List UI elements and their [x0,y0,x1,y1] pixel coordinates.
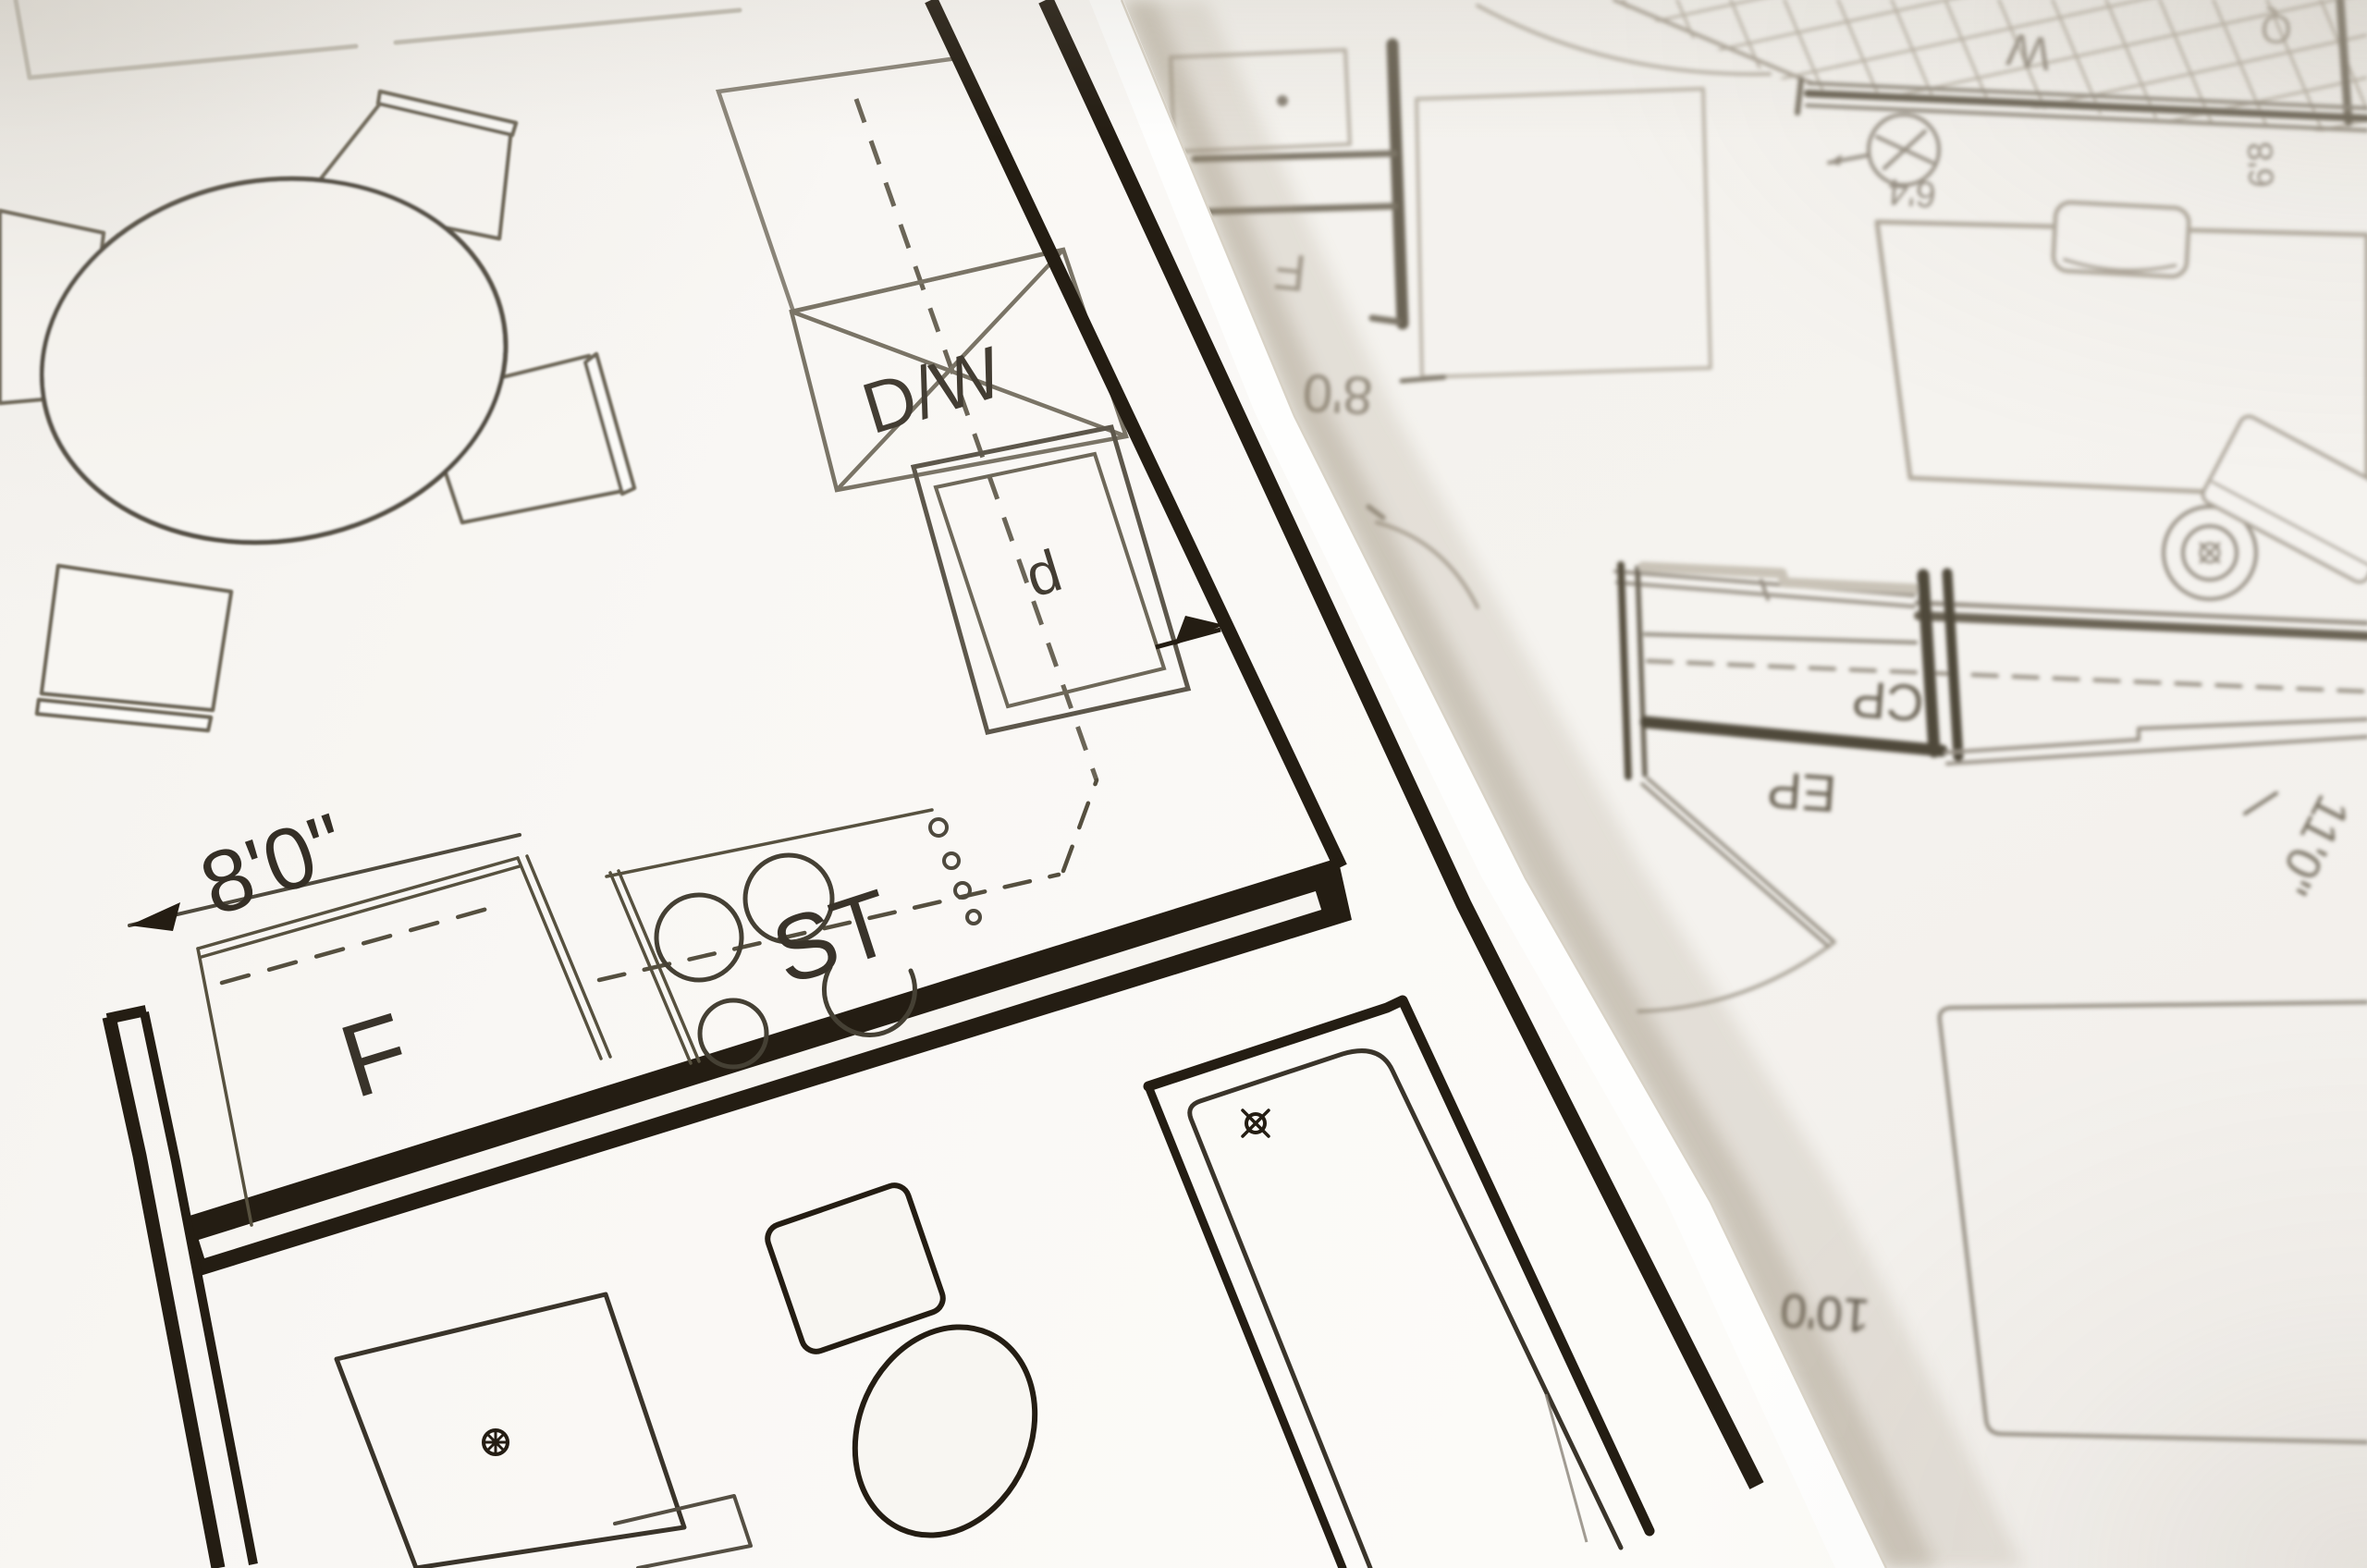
svg-text:CP: CP [1850,670,1926,733]
svg-text:EP: EP [1765,761,1838,824]
